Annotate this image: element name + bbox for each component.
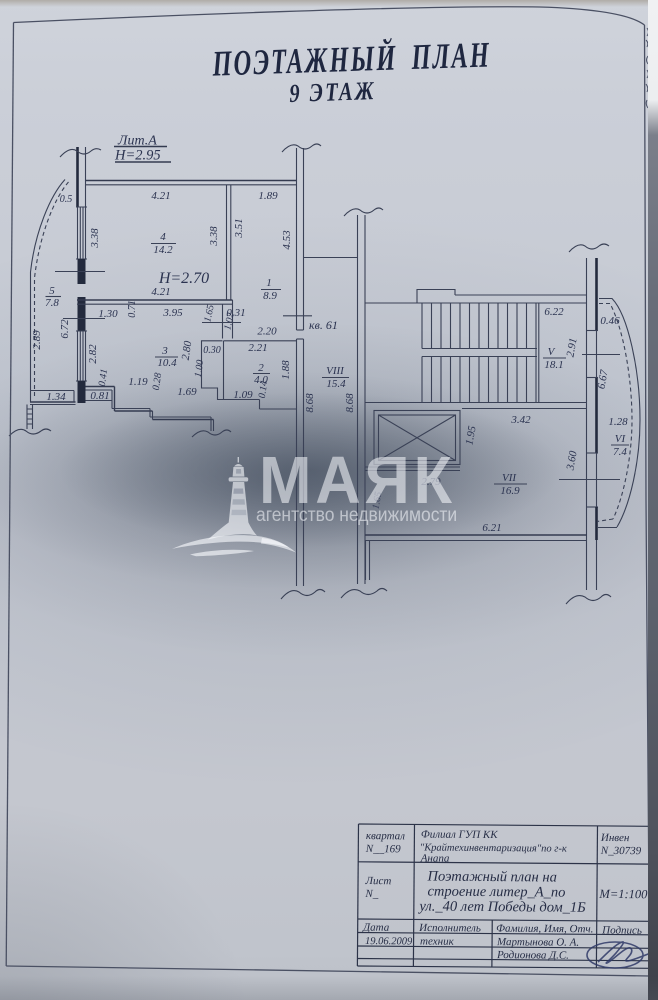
svg-text:1: 1 [266, 277, 272, 289]
svg-text:N__169: N__169 [365, 843, 401, 855]
svg-text:1.88: 1.88 [280, 360, 292, 380]
svg-text:6.67: 6.67 [595, 368, 610, 390]
svg-text:4.21: 4.21 [151, 190, 170, 202]
svg-text:2.89: 2.89 [31, 330, 43, 350]
svg-text:Филиал ГУП КК: Филиал ГУП КК [421, 828, 498, 841]
svg-text:3.38: 3.38 [208, 226, 220, 247]
svg-text:1.69: 1.69 [177, 386, 197, 398]
svg-text:5: 5 [49, 285, 55, 297]
svg-text:Лист: Лист [365, 875, 392, 887]
svg-text:8.9: 8.9 [263, 290, 277, 302]
svg-text:кв. 61: кв. 61 [309, 318, 338, 332]
svg-text:Инвен: Инвен [600, 832, 630, 844]
svg-text:2.20: 2.20 [257, 326, 277, 338]
svg-text:6.72: 6.72 [59, 319, 71, 339]
svg-text:VII: VII [502, 472, 517, 484]
svg-text:Дата: Дата [362, 922, 390, 934]
svg-text:3.42: 3.42 [510, 414, 531, 426]
svg-text:1.02: 1.02 [222, 312, 236, 331]
svg-text:V: V [548, 346, 556, 358]
svg-text:0.41: 0.41 [97, 368, 110, 387]
svg-text:Н=2.95: Н=2.95 [114, 148, 161, 164]
svg-text:Исполнитель: Исполнитель [418, 922, 481, 934]
svg-text:1.89: 1.89 [258, 190, 278, 202]
svg-text:9 ЭТАЖ: 9 ЭТАЖ [289, 77, 377, 109]
svg-text:0.14: 0.14 [257, 380, 270, 399]
svg-text:8.68: 8.68 [344, 393, 356, 413]
svg-text:7.4: 7.4 [613, 446, 627, 458]
svg-text:техник: техник [420, 935, 455, 947]
svg-text:VI: VI [615, 433, 627, 445]
svg-text:N_30739: N_30739 [600, 845, 642, 857]
svg-text:квартал: квартал [366, 830, 405, 842]
svg-text:Родионова Д.С.: Родионова Д.С. [496, 949, 569, 962]
svg-text:0.46: 0.46 [600, 315, 620, 327]
svg-text:Подпись: Подпись [601, 924, 642, 936]
svg-text:0.28: 0.28 [151, 372, 164, 391]
svg-text:0.30: 0.30 [203, 345, 221, 356]
svg-text:1.19: 1.19 [128, 376, 148, 388]
svg-text:1.34: 1.34 [46, 391, 66, 403]
svg-text:3: 3 [161, 345, 168, 357]
svg-text:8.68: 8.68 [304, 393, 316, 413]
svg-text:агентство недвижимости: агентство недвижимости [256, 503, 457, 525]
svg-text:4: 4 [160, 231, 166, 243]
svg-text:1.95: 1.95 [463, 424, 478, 446]
svg-text:14.2: 14.2 [153, 244, 173, 256]
svg-text:Фамилия, Имя, Отч.: Фамилия, Имя, Отч. [496, 923, 593, 936]
svg-text:Н=2.70: Н=2.70 [158, 270, 209, 287]
svg-text:3.51: 3.51 [233, 218, 245, 238]
svg-text:2.91: 2.91 [564, 337, 579, 358]
svg-text:2.80: 2.80 [180, 340, 195, 361]
svg-text:3.38: 3.38 [89, 228, 101, 249]
svg-text:10.4: 10.4 [157, 357, 177, 369]
svg-text:18.1: 18.1 [544, 359, 563, 371]
svg-text:4.21: 4.21 [151, 286, 170, 298]
svg-text:М=1:100: М=1:100 [598, 887, 648, 901]
svg-text:1.28: 1.28 [608, 416, 628, 428]
svg-text:6.21: 6.21 [482, 522, 501, 534]
svg-text:N_: N_ [364, 888, 378, 900]
svg-text:0.5: 0.5 [60, 194, 73, 205]
svg-text:3.95: 3.95 [162, 307, 183, 319]
svg-text:ПОЭТАЖНЫЙ ПЛАН: ПОЭТАЖНЫЙ ПЛАН [211, 32, 492, 83]
svg-text:Анапа: Анапа [420, 852, 450, 864]
svg-text:1.00: 1.00 [193, 359, 206, 378]
svg-text:VIII: VIII [326, 365, 345, 377]
svg-text:1.09: 1.09 [233, 389, 253, 401]
svg-text:6.22: 6.22 [544, 306, 564, 318]
svg-text:2.21: 2.21 [248, 342, 267, 354]
svg-text:3.60: 3.60 [564, 449, 579, 472]
svg-text:16.9: 16.9 [500, 485, 520, 497]
svg-text:4.53: 4.53 [281, 230, 293, 250]
svg-text:2: 2 [258, 362, 264, 374]
svg-text:ул._40 лет Победы дом_1Б: ул._40 лет Победы дом_1Б [417, 898, 586, 915]
svg-text:15.4: 15.4 [326, 378, 346, 390]
svg-text:2.82: 2.82 [87, 344, 99, 364]
svg-text:0.71: 0.71 [127, 300, 138, 318]
svg-text:7.8: 7.8 [45, 297, 59, 309]
svg-text:1.65: 1.65 [202, 304, 216, 323]
svg-text:Мартынова О. А.: Мартынова О. А. [496, 936, 579, 949]
svg-text:19.06.2009: 19.06.2009 [365, 936, 413, 947]
